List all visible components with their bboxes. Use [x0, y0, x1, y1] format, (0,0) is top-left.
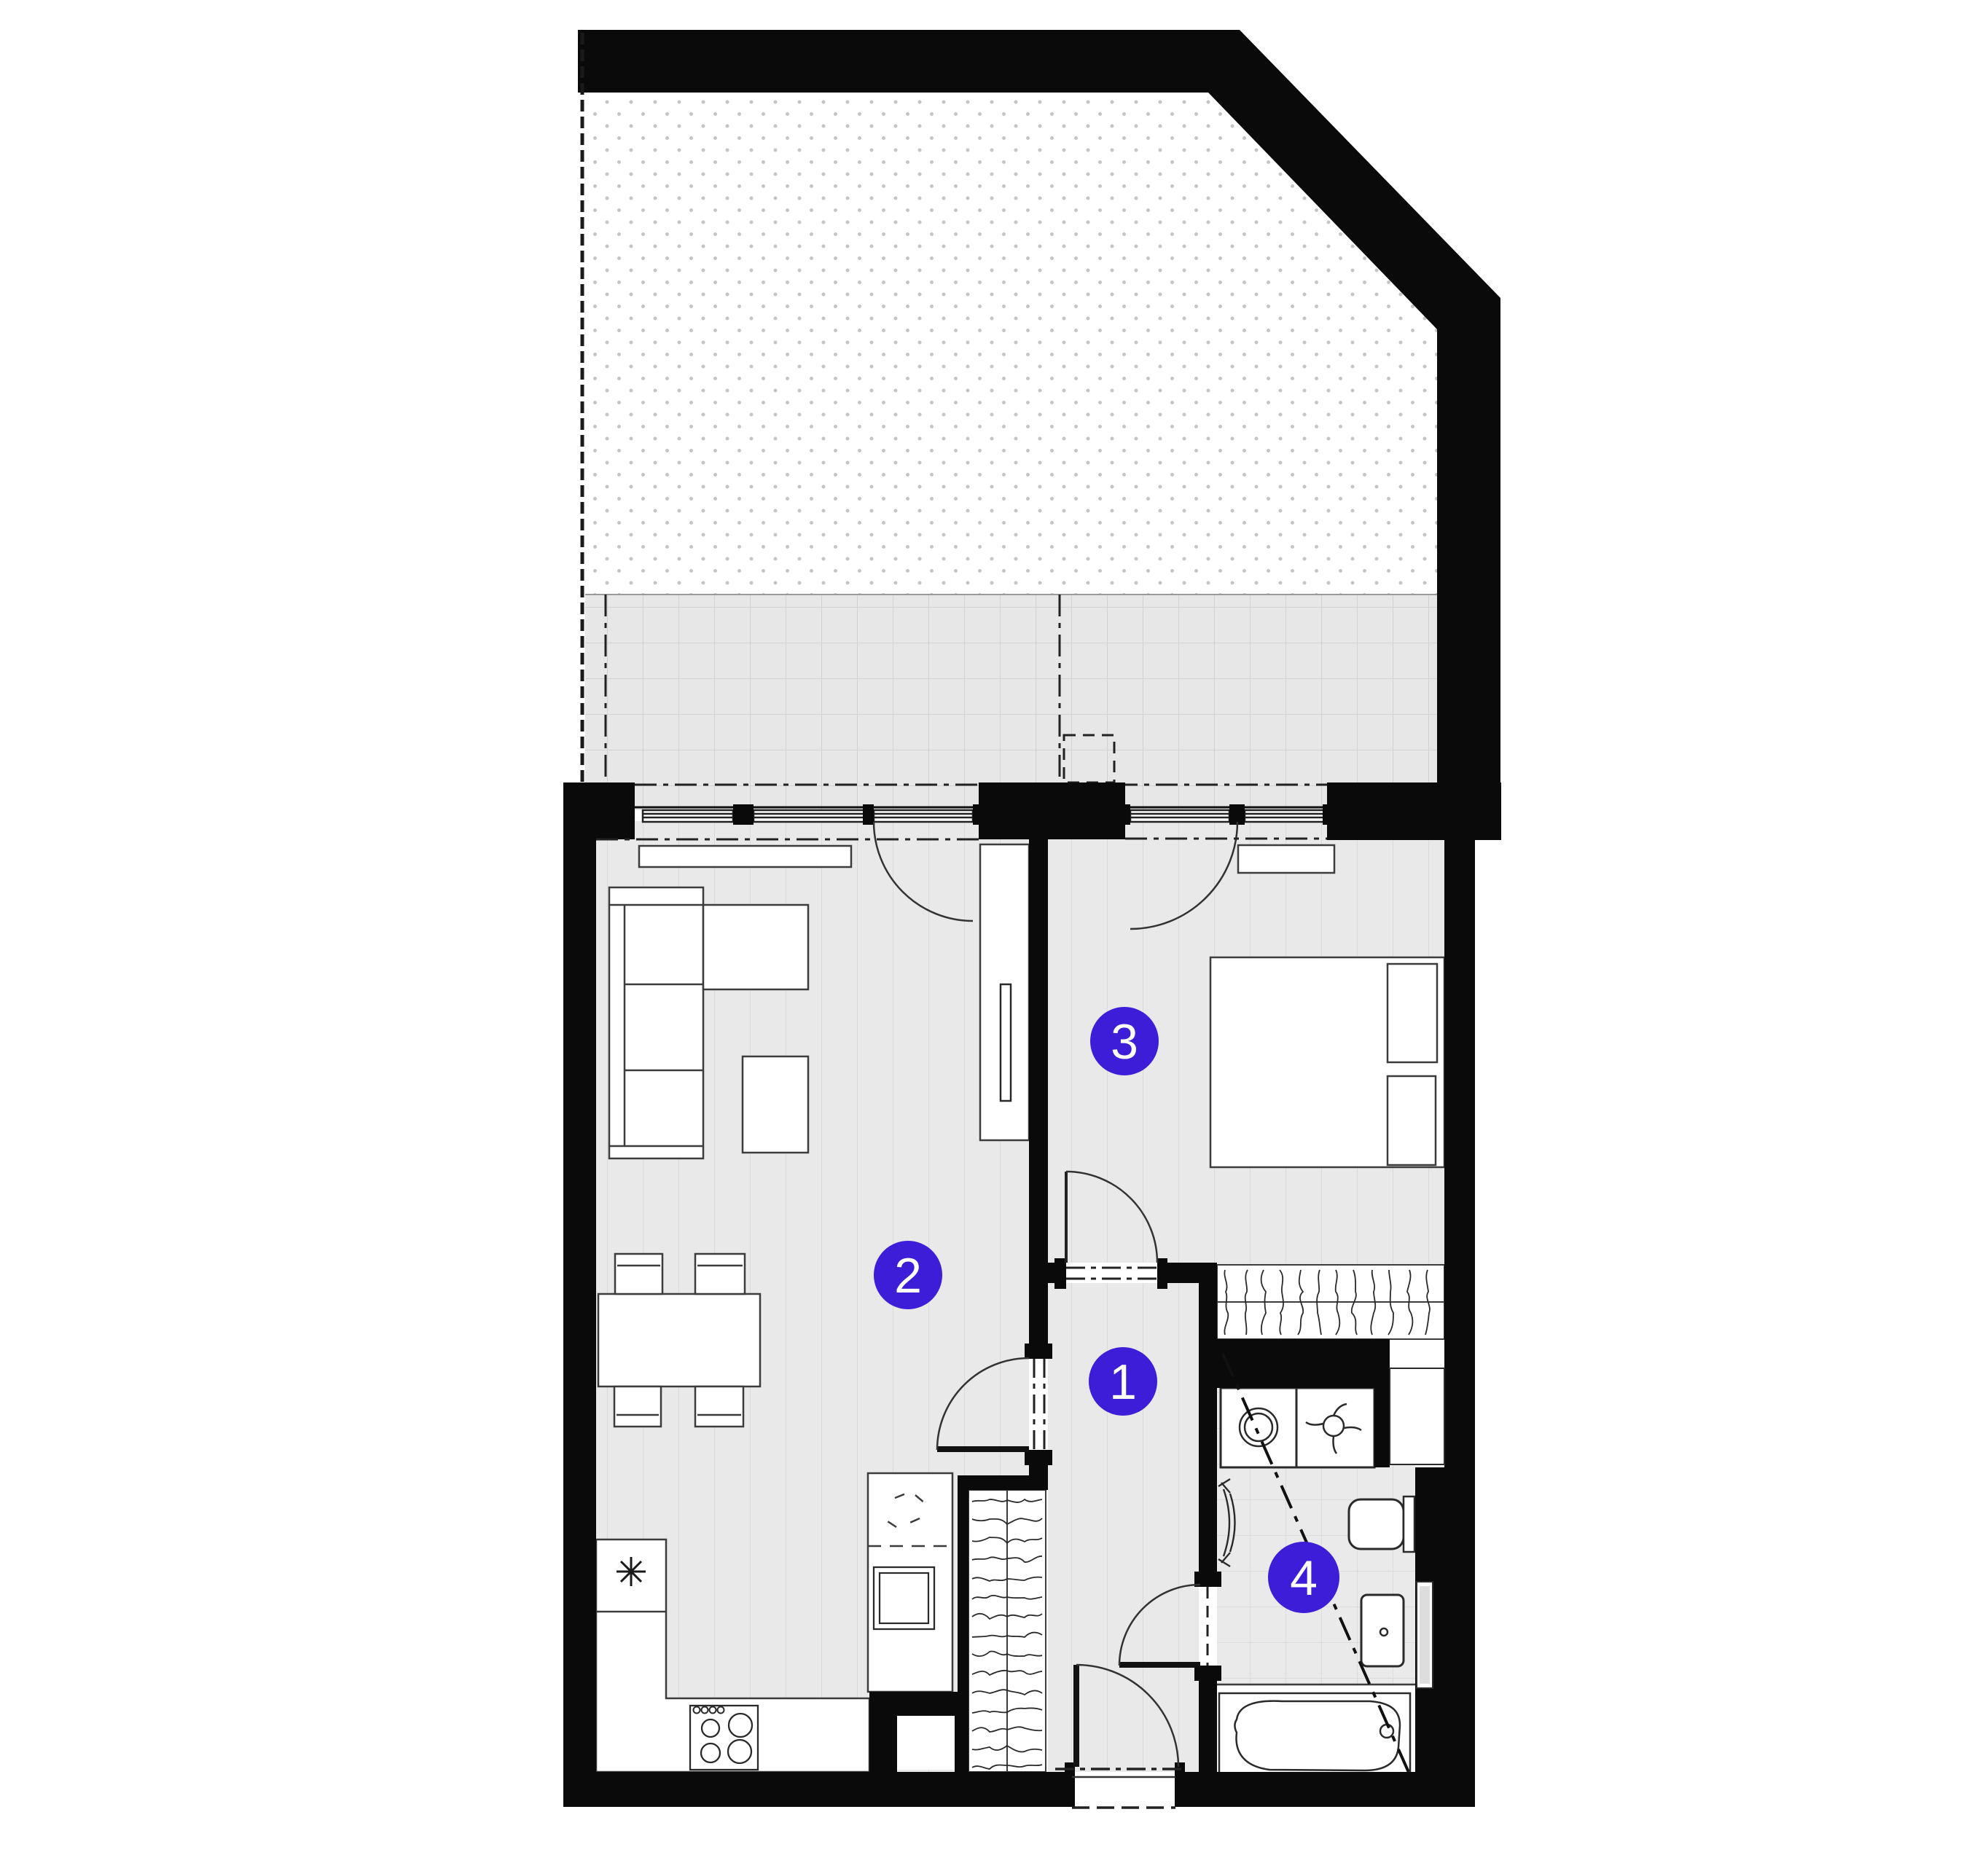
- svg-text:4: 4: [1290, 1550, 1318, 1606]
- svg-text:3: 3: [1111, 1014, 1138, 1070]
- svg-text:2: 2: [894, 1248, 922, 1303]
- svg-text:1: 1: [1109, 1354, 1137, 1410]
